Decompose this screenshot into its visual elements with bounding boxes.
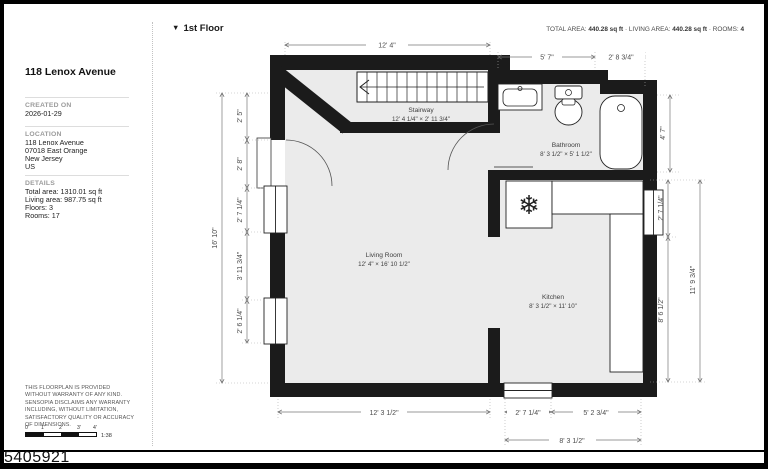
living-room-label: Living Room xyxy=(366,252,403,259)
dim-top-living: 12' 4" xyxy=(378,43,396,50)
window-left-lower xyxy=(264,298,287,344)
separator: · xyxy=(709,26,711,33)
scale-tick: 1' xyxy=(41,425,45,431)
dim-left-4: 3' 11 3/4" xyxy=(237,251,244,280)
floor-section-toggle[interactable]: ▼1st Floor xyxy=(172,23,224,34)
scale-bar: 0' 1' 2' 3' 4' 1:38 xyxy=(25,425,97,437)
living-area-label: LIVING AREA: xyxy=(629,26,671,33)
floor-stats: TOTAL AREA: 440.28 sq ft · LIVING AREA: … xyxy=(546,26,744,33)
refrigerator: ❄ xyxy=(506,181,552,228)
dim-right-2: 2' 7 1/4" xyxy=(658,195,665,221)
scale-tick: 0' xyxy=(25,425,29,431)
living-room-size: 12' 4" × 16' 10 1/2" xyxy=(358,261,410,268)
created-on-value: 2026-01-29 xyxy=(25,110,62,118)
divider xyxy=(25,126,129,127)
dim-right-total: 11' 9 3/4" xyxy=(690,265,697,294)
divider xyxy=(25,175,129,176)
window-left-upper xyxy=(264,186,287,233)
dim-right-1: 4' 7" xyxy=(660,126,667,140)
dim-bottom-total: 8' 3 1/2" xyxy=(559,438,585,445)
bathroom-label: Bathroom xyxy=(552,142,581,149)
scale-tick: 4' xyxy=(93,425,97,431)
scale-bar-segments xyxy=(25,432,97,437)
created-on-label: CREATED ON xyxy=(25,102,71,109)
dim-left-2: 2' 8" xyxy=(237,157,244,171)
dim-bottom-living: 12' 3 1/2" xyxy=(369,410,399,417)
scale-ratio: 1:38 xyxy=(101,433,112,439)
scale-tick-labels: 0' 1' 2' 3' 4' xyxy=(25,425,97,432)
dim-left-3: 2' 7 1/4" xyxy=(237,197,244,223)
property-title: 118 Lenox Avenue xyxy=(25,66,145,78)
sink-vanity-icon xyxy=(498,84,542,110)
location-label: LOCATION xyxy=(25,131,62,138)
sidebar-divider xyxy=(152,22,153,446)
details-value: Total area: 1310.01 sq ft Living area: 9… xyxy=(25,188,102,220)
kitchen-size: 8' 3 1/2" × 11' 10" xyxy=(529,303,577,310)
rooms-value: 4 xyxy=(740,26,744,33)
dim-left-5: 2' 6 1/4" xyxy=(237,308,244,334)
disclaimer-text: This floorplan is provided without warra… xyxy=(25,385,137,430)
scale-tick: 2' xyxy=(59,425,63,431)
bathroom-size: 8' 3 1/2" × 5' 1 1/2" xyxy=(540,151,592,158)
rooms-label: ROOMS: xyxy=(713,26,739,33)
floorplan-report-window: 5405921 xyxy=(0,0,768,469)
details-label: DETAILS xyxy=(25,180,55,187)
bathtub-icon xyxy=(600,96,642,169)
stairway-label: Stairway xyxy=(408,107,434,114)
divider xyxy=(25,97,129,98)
dim-top-bath: 5' 7" xyxy=(540,55,554,62)
dim-left-1: 2' 5" xyxy=(237,109,244,123)
total-area-value: 440.28 sq ft xyxy=(588,26,623,33)
collapse-triangle-icon: ▼ xyxy=(172,23,179,32)
stairway-size: 12' 4 1/4" × 2' 11 3/4" xyxy=(392,116,450,123)
floor-label: 1st Floor xyxy=(183,23,223,34)
dim-right-3: 8' 6 1/2" xyxy=(658,297,665,323)
dim-bottom-kitchen: 5' 2 3/4" xyxy=(583,410,609,417)
scale-tick: 3' xyxy=(77,425,81,431)
kitchen-label: Kitchen xyxy=(542,294,564,301)
total-area-label: TOTAL AREA: xyxy=(546,26,586,33)
dim-top-tub: 2' 8 3/4" xyxy=(608,55,634,62)
separator: · xyxy=(625,26,627,33)
location-value: 118 Lenox Avenue 07018 East Orange New J… xyxy=(25,139,87,171)
stairway-symbol xyxy=(357,72,488,102)
refrigerator-icon: ❄ xyxy=(518,190,540,220)
living-area-value: 440.28 sq ft xyxy=(672,26,707,33)
dim-left-total: 16' 10" xyxy=(212,227,219,249)
toilet-icon xyxy=(555,86,582,125)
dim-bottom-window: 2' 7 1/4" xyxy=(515,410,541,417)
window-kitchen-bottom xyxy=(504,383,552,398)
